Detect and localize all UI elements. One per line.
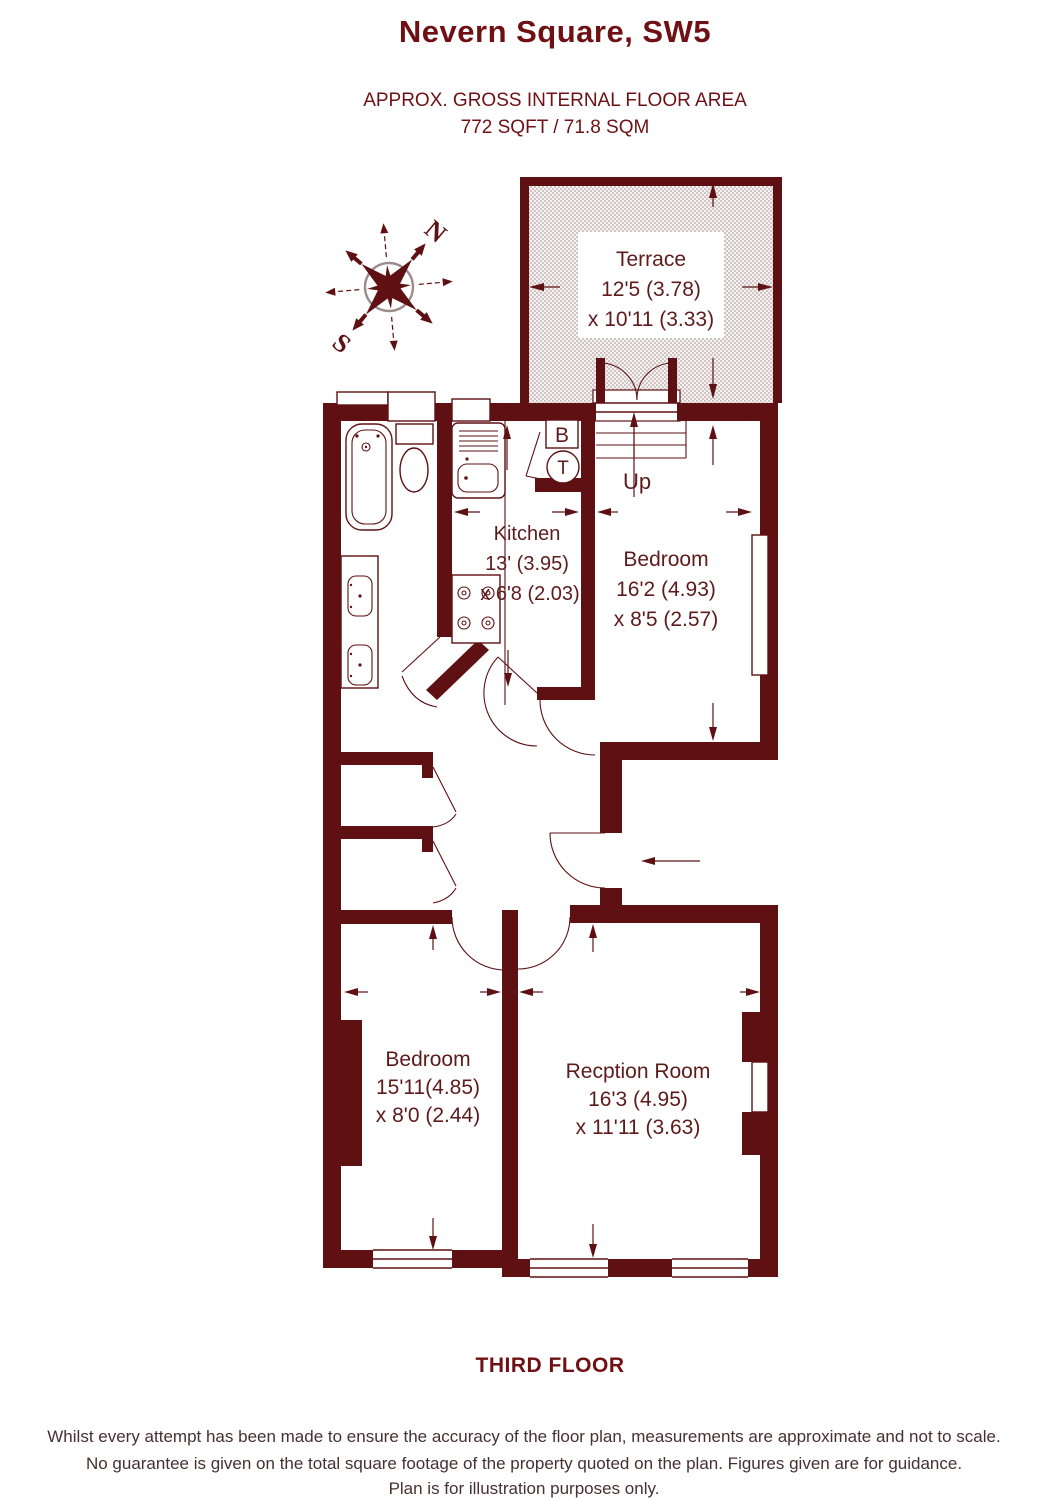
toilet-icon <box>396 424 433 492</box>
svg-text:x 10'11 (3.33): x 10'11 (3.33) <box>588 308 714 331</box>
svg-text:Bedroom: Bedroom <box>623 548 708 571</box>
bathtub-icon <box>346 424 392 530</box>
basin-unit-icon <box>341 556 378 688</box>
bedroom-top-door <box>540 700 595 755</box>
kitchen-sink-icon <box>452 423 505 498</box>
svg-text:x 8'0 (2.44): x 8'0 (2.44) <box>376 1104 480 1127</box>
floor-label: THIRD FLOOR <box>26 1354 1048 1378</box>
svg-text:Kitchen: Kitchen <box>494 523 561 545</box>
window-recess <box>752 535 768 675</box>
room-label-bedroom-bottom: Bedroom 15'11(4.85) x 8'0 (2.44) <box>376 1048 480 1127</box>
svg-text:x 6'8 (2.03): x 6'8 (2.03) <box>480 583 579 605</box>
svg-text:x 8'5 (2.57): x 8'5 (2.57) <box>614 608 718 631</box>
window <box>337 392 388 405</box>
compass-south-label: S <box>327 328 357 360</box>
stairs-up-label: Up <box>623 469 651 494</box>
svg-text:Recption Room: Recption Room <box>566 1060 711 1083</box>
window <box>672 1259 748 1277</box>
svg-text:13' (3.95): 13' (3.95) <box>485 553 569 575</box>
cupboard-door <box>526 432 541 479</box>
entry-door <box>550 833 605 888</box>
window <box>452 399 490 421</box>
room-label-kitchen: Kitchen 13' (3.95) x 6'8 (2.03) <box>480 523 579 605</box>
svg-text:12'5 (3.78): 12'5 (3.78) <box>601 278 701 301</box>
room-label-reception: Recption Room 16'3 (4.95) x 11'11 (3.63) <box>566 1060 711 1139</box>
bedroom-bottom-door <box>452 917 505 970</box>
compass-icon: N S <box>261 159 516 414</box>
reception-door <box>518 917 570 969</box>
floor-plan-svg: B T Terrace <box>0 0 1048 1500</box>
room-label-bedroom-top: Bedroom 16'2 (4.93) x 8'5 (2.57) <box>614 548 718 631</box>
closet-door <box>433 767 456 827</box>
boiler-box: B <box>546 420 578 448</box>
window <box>373 1250 452 1268</box>
window <box>388 392 435 421</box>
svg-text:15'11(4.85): 15'11(4.85) <box>376 1076 480 1099</box>
window-recess <box>752 1062 768 1112</box>
svg-text:T: T <box>557 458 569 479</box>
disclaimer-line: Whilst every attempt has been made to en… <box>0 1427 1048 1447</box>
disclaimer-line: Plan is for illustration purposes only. <box>0 1479 1048 1499</box>
window <box>530 1259 608 1277</box>
disclaimer-line: No guarantee is given on the total squar… <box>0 1454 1048 1474</box>
svg-text:16'2 (4.93): 16'2 (4.93) <box>616 578 716 601</box>
svg-text:Bedroom: Bedroom <box>385 1048 470 1071</box>
svg-text:B: B <box>555 424 569 447</box>
compass-north-label: N <box>419 214 452 248</box>
closet-door <box>433 841 456 903</box>
svg-text:x 11'11 (3.63): x 11'11 (3.63) <box>576 1116 701 1139</box>
svg-text:16'3 (4.95): 16'3 (4.95) <box>588 1088 688 1111</box>
svg-text:Terrace: Terrace <box>616 248 686 271</box>
kitchen-door <box>484 657 537 746</box>
tank-circle: T <box>547 451 579 483</box>
